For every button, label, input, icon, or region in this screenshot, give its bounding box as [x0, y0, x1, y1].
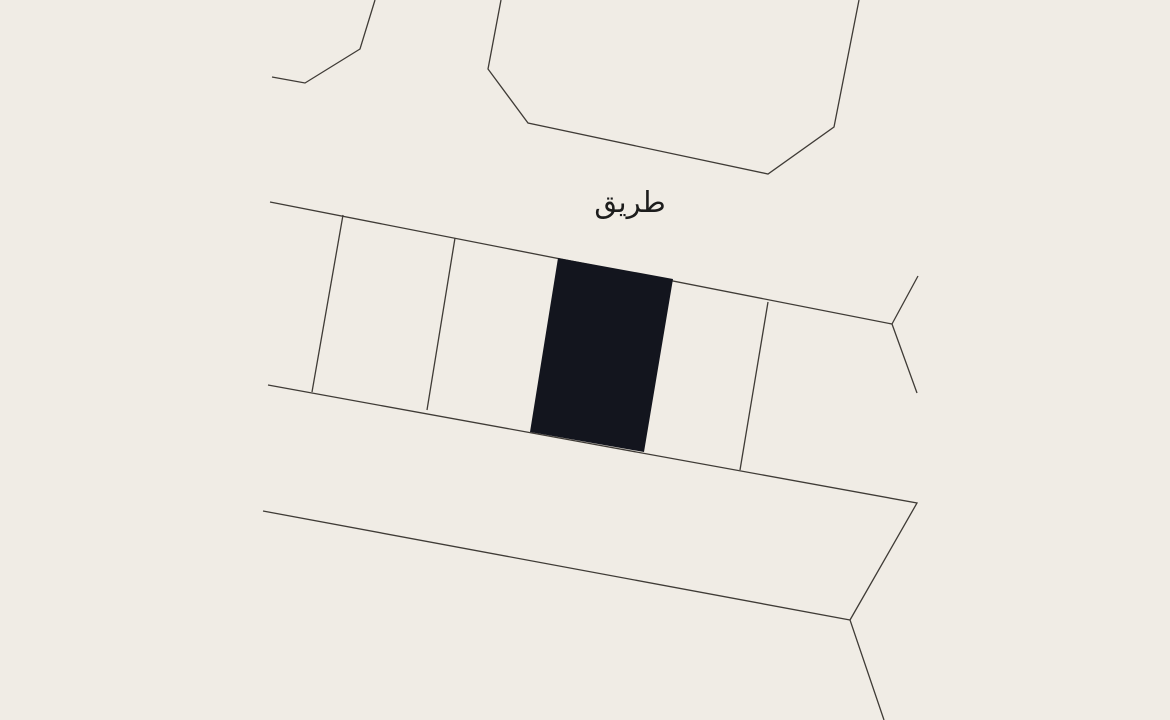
parcel-divider-2 [427, 238, 455, 410]
junction-spur-north [892, 276, 918, 324]
parcel-shapes-layer [263, 0, 918, 720]
parcel-divider-1 [312, 215, 343, 392]
selected-parcel[interactable] [530, 258, 673, 452]
map-canvas[interactable]: طريق [0, 0, 1170, 720]
junction-spur-south [892, 324, 917, 393]
parcel-divider-3 [740, 302, 768, 470]
block-northwest-boundary [272, 0, 375, 83]
map-viewport[interactable]: طريق [0, 0, 1170, 720]
road-south-edge [263, 511, 850, 620]
road-label: طريق [594, 185, 665, 219]
block-north-boundary [488, 0, 859, 174]
